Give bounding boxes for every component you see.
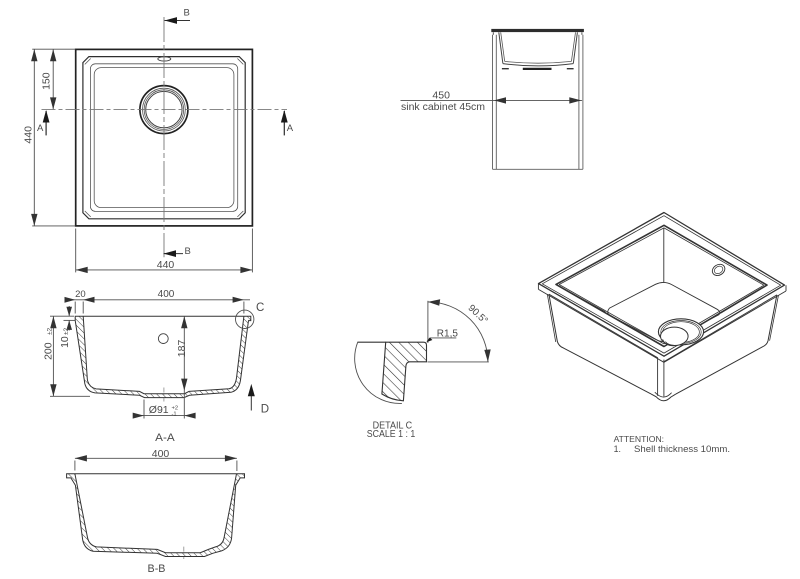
svg-text:B: B: [185, 246, 191, 257]
svg-text:A: A: [37, 123, 44, 134]
svg-text:sink cabinet 45cm: sink cabinet 45cm: [401, 101, 485, 113]
svg-text:B: B: [184, 8, 190, 19]
svg-text:20: 20: [75, 289, 86, 300]
svg-text:SCALE 1 : 1: SCALE 1 : 1: [367, 429, 416, 440]
svg-text:D: D: [261, 403, 269, 415]
svg-text:C: C: [256, 302, 264, 314]
svg-text:R1,5: R1,5: [437, 328, 459, 339]
svg-text:±2: ±2: [47, 327, 54, 335]
svg-text:400: 400: [152, 448, 170, 460]
svg-text:B-B: B-B: [148, 563, 166, 575]
svg-text:ATTENTION:: ATTENTION:: [614, 434, 664, 444]
svg-text:440: 440: [157, 259, 175, 271]
svg-text:90.5°: 90.5°: [466, 303, 490, 327]
svg-text:±2: ±2: [63, 327, 70, 335]
svg-text:-1: -1: [172, 412, 177, 418]
svg-text:150: 150: [40, 72, 52, 90]
svg-text:Ø91: Ø91: [149, 404, 169, 416]
svg-text:187: 187: [176, 340, 188, 358]
svg-text:200: 200: [42, 342, 54, 360]
svg-text:A: A: [287, 123, 294, 134]
svg-text:440: 440: [23, 126, 35, 144]
svg-text:1.Shell thickness 10mm.: 1.Shell thickness 10mm.: [614, 444, 730, 454]
svg-text:10: 10: [59, 336, 71, 348]
svg-text:450: 450: [432, 89, 450, 101]
svg-text:A-A: A-A: [155, 432, 175, 444]
svg-text:400: 400: [158, 289, 175, 300]
